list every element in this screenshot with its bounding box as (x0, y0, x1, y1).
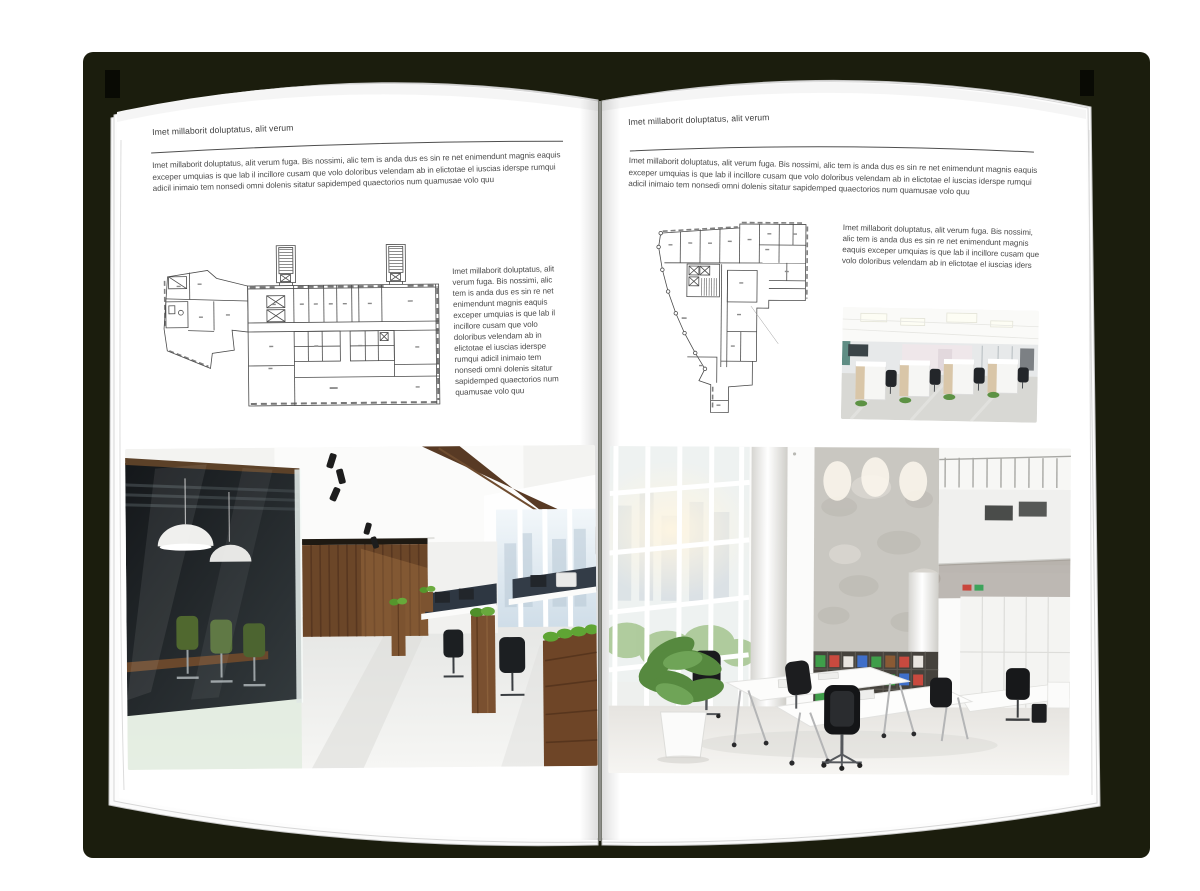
right-page-intro: Imet millaborit doluptatus, alit verum f… (628, 155, 1038, 200)
left-page-side-text: Imet millaborit doluptatus, alit verum f… (452, 263, 568, 398)
floor-plan-left (153, 224, 447, 423)
right-page-side-text: Imet millaborit doluptatus, alit verum f… (842, 222, 1043, 271)
office-photo-small (841, 307, 1039, 423)
left-page-title: Imet millaborit doluptatus, alit verum (152, 123, 294, 137)
floor-plan-right (647, 217, 809, 418)
right-page: Imet millaborit doluptatus, alit verum I… (600, 0, 1200, 891)
office-photo-right (608, 446, 1071, 775)
right-title-rule (629, 139, 1037, 157)
office-photo-left (125, 445, 598, 770)
left-page-intro: Imet millaborit doluptatus, alit verum f… (152, 149, 570, 195)
brochure-mockup-scene: Imet millaborit doluptatus, alit verum I… (0, 0, 1200, 891)
left-page: Imet millaborit doluptatus, alit verum I… (0, 0, 600, 891)
right-page-title: Imet millaborit doluptatus, alit verum (628, 112, 770, 127)
